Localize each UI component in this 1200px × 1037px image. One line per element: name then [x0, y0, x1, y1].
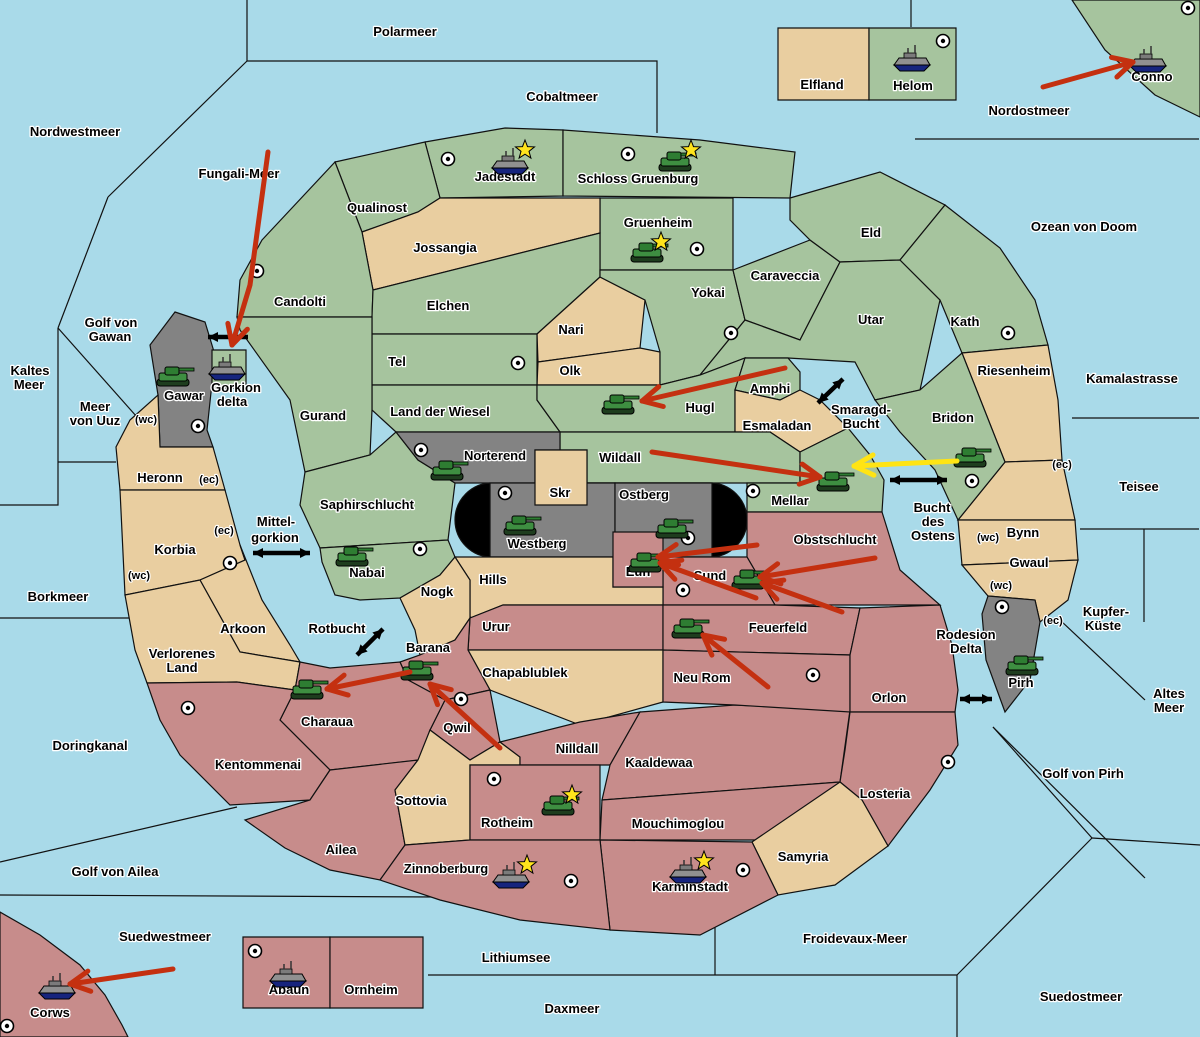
sea-label: Bucht [843, 416, 881, 431]
region-label-jossangia: Jossangia [413, 240, 477, 255]
region-label-orlon: Orlon [872, 690, 907, 705]
region-label-verlorenes-land: Verlorenes [149, 646, 216, 661]
region-label-land-der-wiesel: Land der Wiesel [390, 404, 490, 419]
sea-label: Bucht [914, 500, 952, 515]
sea-label: Kupfer- [1083, 604, 1129, 619]
region-label-utar: Utar [858, 312, 884, 327]
region-label-gurand: Gurand [300, 408, 346, 423]
supply-center-helom [937, 35, 950, 48]
region-label-charaua: Charaua [301, 714, 354, 729]
game-map-stage: JadestadtSchloss GruenburgGruenheimQuali… [0, 0, 1200, 1037]
sea-label: Meer [1154, 700, 1184, 715]
red-arrowhead [762, 580, 784, 583]
sea-label: Küste [1085, 618, 1121, 633]
coast-marker-heronn: (ec) [199, 474, 219, 486]
supply-center-mellar [747, 485, 760, 498]
region-label-amphi: Amphi [750, 381, 790, 396]
supply-center-jadestadt [442, 153, 455, 166]
sea-label: Rotbucht [308, 621, 366, 636]
region-label-obstschlucht: Obstschlucht [793, 532, 877, 547]
region-label-kaaldewaa: Kaaldewaa [625, 755, 693, 770]
supply-center-nabai [414, 543, 427, 556]
supply-center-sund [677, 584, 690, 597]
region-label-nogk: Nogk [421, 584, 454, 599]
sea-label: Mittel- [257, 514, 295, 529]
region-label-barana: Barana [406, 640, 451, 655]
supply-center-westberg [499, 487, 512, 500]
region-label-saphirschlucht: Saphirschlucht [320, 497, 415, 512]
region-label-bynn: Bynn [1007, 525, 1040, 540]
sea-label: des [922, 514, 944, 529]
sea-label: Golf von [85, 315, 138, 330]
sea-label: Rodesion [936, 627, 995, 642]
region-label-feuerfeld: Feuerfeld [749, 620, 808, 635]
sea-label: Gorkion [211, 380, 261, 395]
region-label-rotheim: Rotheim [481, 815, 533, 830]
coast-marker-gwaul: (ec) [1043, 615, 1063, 627]
sea-label: Daxmeer [545, 1001, 600, 1016]
region-label-verlorenes-land: Land [166, 660, 197, 675]
sea-label: Golf von Ailea [72, 864, 160, 879]
sea-label: Nordostmeer [989, 103, 1070, 118]
sea-label: Gawan [89, 329, 132, 344]
sea-label: Suedwestmeer [119, 929, 211, 944]
region-label-samyria: Samyria [778, 849, 829, 864]
sea-label: Altes [1153, 686, 1185, 701]
red-arrowhead [660, 560, 682, 563]
region-label-mouchimoglou: Mouchimoglou [632, 816, 724, 831]
region-label-nilldall: Nilldall [556, 741, 599, 756]
sea-label: Suedostmeer [1040, 989, 1122, 1004]
region-label-riesenheim: Riesenheim [978, 363, 1051, 378]
region-label-ostberg: Ostberg [619, 487, 669, 502]
region-label-gwaul: Gwaul [1009, 555, 1048, 570]
supply-center-losteria [942, 756, 955, 769]
coast-marker-gwaul: (wc) [990, 580, 1012, 592]
region-label-yokai: Yokai [691, 285, 725, 300]
region-label-urur: Urur [482, 619, 509, 634]
supply-center-rotheim [488, 773, 501, 786]
region-label-pirh: Pirh [1008, 675, 1033, 690]
supply-center-karminstadt [737, 864, 750, 877]
supply-center-schloss-gruenburg [622, 148, 635, 161]
region-label-tel: Tel [388, 354, 406, 369]
region-label-losteria: Losteria [860, 786, 911, 801]
sea-label: gorkion [251, 530, 299, 545]
coast-marker-bynn: (wc) [977, 532, 999, 544]
region-label-esmaladan: Esmaladan [743, 418, 812, 433]
supply-center-abaun [249, 945, 262, 958]
sea-label: Kaltes [10, 363, 49, 378]
sea-label: Meer [80, 399, 110, 414]
region-label-wildall: Wildall [599, 450, 641, 465]
region-label-qwil: Qwil [443, 720, 470, 735]
region-label-mellar: Mellar [771, 493, 809, 508]
sea-label: Ozean von Doom [1031, 219, 1137, 234]
region-label-candolti: Candolti [274, 294, 326, 309]
sea-label: Cobaltmeer [526, 89, 598, 104]
sea-label: Borkmeer [28, 589, 89, 604]
region-label-eld: Eld [861, 225, 881, 240]
supply-center-yokai [725, 327, 738, 340]
sea-label: Meer [14, 377, 44, 392]
sea-label: Teisee [1119, 479, 1159, 494]
supply-center-conno [1182, 2, 1195, 15]
region-label-schloss-gruenburg: Schloss Gruenburg [578, 171, 699, 186]
region-label-elfland: Elfland [800, 77, 843, 92]
sea-label: Froidevaux-Meer [803, 931, 907, 946]
region-label-corws: Corws [30, 1005, 70, 1020]
region-label-westberg: Westberg [508, 536, 567, 551]
region-label-ornheim: Ornheim [344, 982, 397, 997]
coast-marker-riesenheim-ec: (ec) [1052, 459, 1072, 471]
region-label-skr: Skr [550, 485, 571, 500]
sea-label: von Uuz [70, 413, 121, 428]
supply-center-zinnoberburg [565, 875, 578, 888]
region-label-gawar: Gawar [164, 388, 204, 403]
region-label-hugl: Hugl [686, 400, 715, 415]
region-label-neu-rom: Neu Rom [673, 670, 730, 685]
region-gruenheim[interactable] [600, 198, 733, 270]
sea-label: Ostens [911, 528, 955, 543]
supply-center-tel [512, 357, 525, 370]
supply-center-neu-rom [807, 669, 820, 682]
supply-center-gawar [192, 420, 205, 433]
sea-label: Doringkanal [52, 738, 127, 753]
sea-label: Golf von Pirh [1042, 766, 1124, 781]
region-label-caraveccia: Caraveccia [751, 268, 820, 283]
region-label-gruenheim: Gruenheim [624, 215, 693, 230]
region-label-chapablublek: Chapablublek [482, 665, 568, 680]
sea-label: Nordwestmeer [30, 124, 120, 139]
supply-center-norterend [415, 444, 428, 457]
region-label-kath: Kath [951, 314, 980, 329]
supply-center-gruenheim [691, 243, 704, 256]
region-label-kentommenai: Kentommenai [215, 757, 301, 772]
coast-marker-heronn: (wc) [135, 414, 157, 426]
region-label-korbia: Korbia [154, 542, 196, 557]
region-label-arkoon: Arkoon [220, 621, 266, 636]
region-label-helom: Helom [893, 78, 933, 93]
region-label-heronn: Heronn [137, 470, 183, 485]
region-label-qualinost: Qualinost [347, 200, 408, 215]
supply-center-corws [1, 1020, 14, 1033]
region-label-norterend: Norterend [464, 448, 526, 463]
region-label-bridon: Bridon [932, 410, 974, 425]
coast-marker-korbia: (ec) [214, 525, 234, 537]
region-label-olk: Olk [560, 363, 582, 378]
region-label-zinnoberburg: Zinnoberburg [404, 861, 489, 876]
sea-label: delta [217, 394, 248, 409]
sea-label: Delta [950, 641, 983, 656]
supply-center-kath [1002, 327, 1015, 340]
region-label-nabai: Nabai [349, 565, 384, 580]
supply-center-pirh [996, 601, 1009, 614]
supply-center-bridon [966, 475, 979, 488]
sea-label: Lithiumsee [482, 950, 551, 965]
sea-label: Kamalastrasse [1086, 371, 1178, 386]
region-label-elchen: Elchen [427, 298, 470, 313]
region-label-nari: Nari [558, 322, 583, 337]
sea-label: Polarmeer [373, 24, 437, 39]
region-ornheim[interactable] [330, 937, 423, 1008]
supply-center-qwil [455, 693, 468, 706]
supply-center-korbia [224, 557, 237, 570]
supply-center-kentommenai [182, 702, 195, 715]
region-label-hills: Hills [479, 572, 506, 587]
sea-label: Smaragd- [831, 402, 891, 417]
region-label-sottovia: Sottovia [395, 793, 447, 808]
map-svg: JadestadtSchloss GruenburgGruenheimQuali… [0, 0, 1200, 1037]
coast-marker-korbia: (wc) [128, 570, 150, 582]
region-label-ailea: Ailea [325, 842, 357, 857]
